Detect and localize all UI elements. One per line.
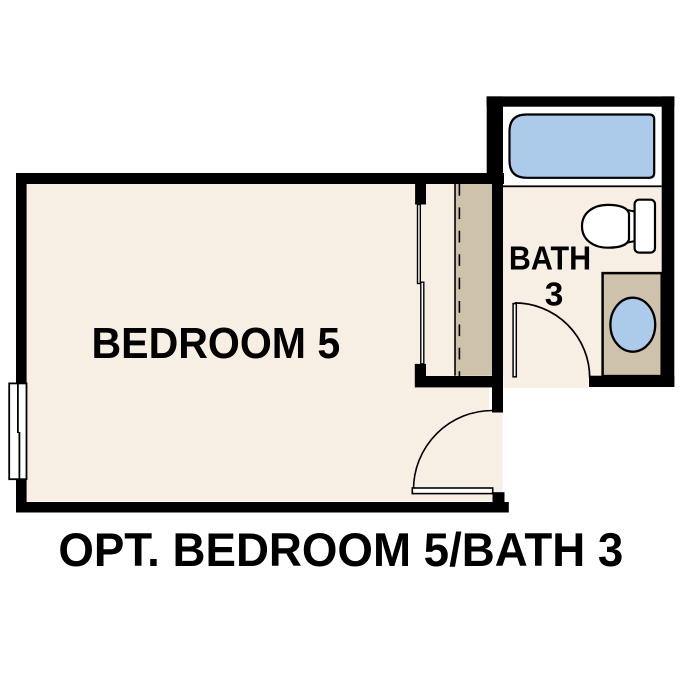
svg-text:OPT. BEDROOM 5/BATH 3: OPT. BEDROOM 5/BATH 3 xyxy=(58,523,623,576)
svg-text:3: 3 xyxy=(545,276,564,313)
svg-text:BATH: BATH xyxy=(509,239,591,277)
svg-text:BEDROOM 5: BEDROOM 5 xyxy=(92,320,341,369)
